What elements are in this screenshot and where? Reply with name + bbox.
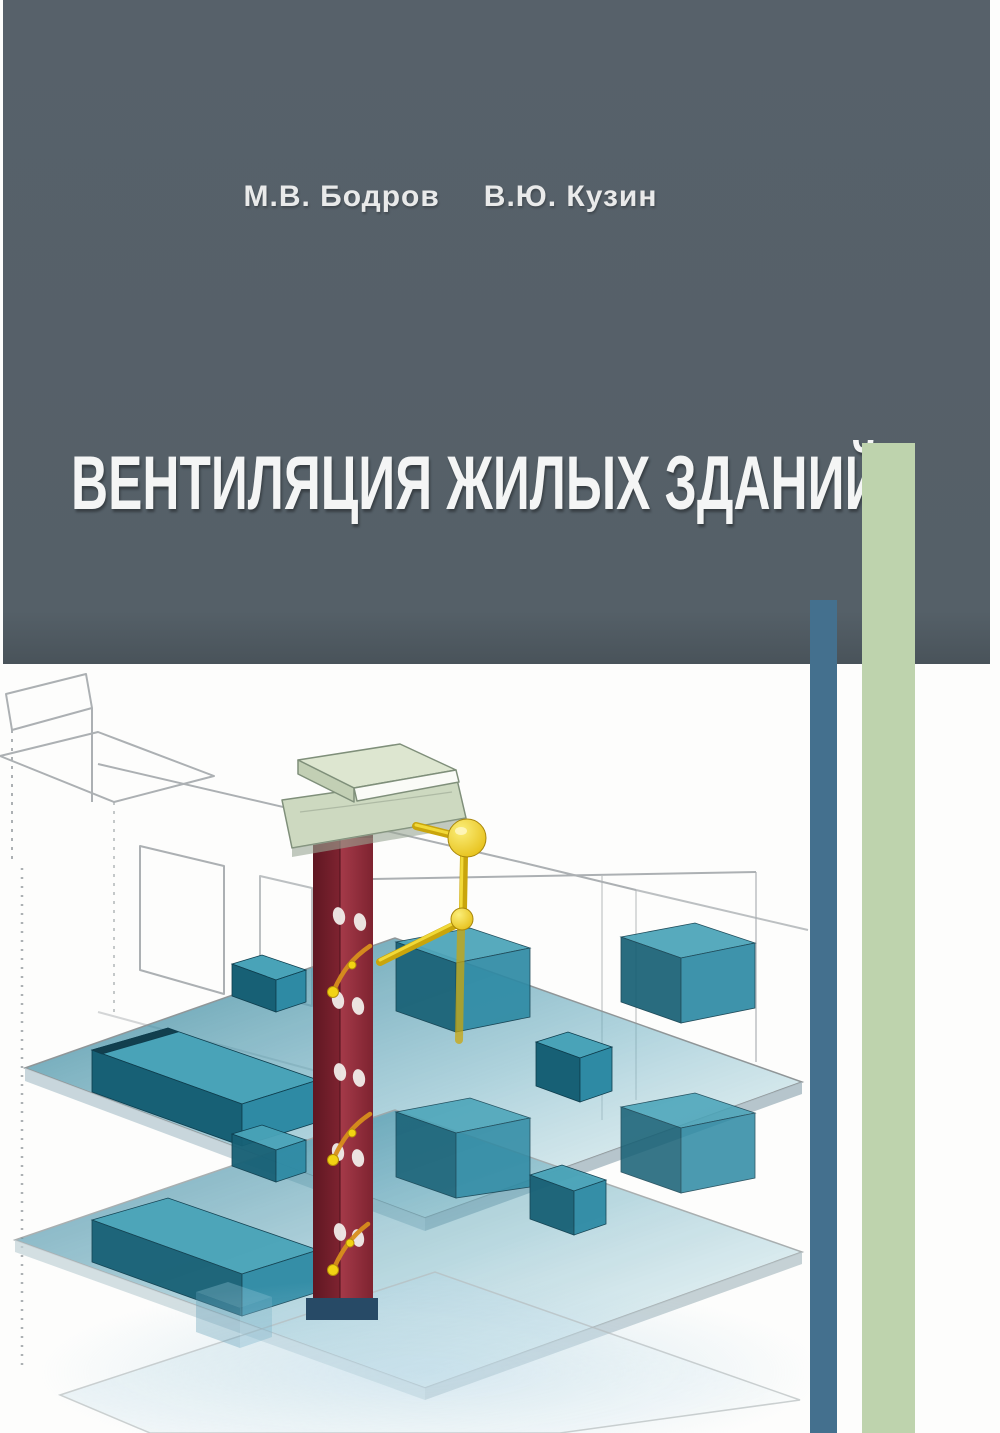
blue-accent-stripe [810,600,837,1433]
book-cover: М.В. Бодров В.Ю. Кузин ВЕНТИЛЯЦИЯ ЖИЛЫХ … [0,0,1000,1433]
exhaust-shaft [306,830,378,1320]
pipe-joint-large [448,819,486,857]
author-2: В.Ю. Кузин [484,180,658,214]
shaft-base [306,1298,378,1320]
tall-box-right-2 [621,1093,755,1193]
ventilation-illustration [0,664,1000,1433]
green-accent-stripe [862,443,915,1433]
roof-cowl [282,744,466,857]
authors-row: М.В. Бодров В.Ю. Кузин [0,180,944,214]
book-title: ВЕНТИЛЯЦИЯ ЖИЛЫХ ЗДАНИЙ [71,446,882,522]
cover-header-panel: М.В. Бодров В.Ю. Кузин ВЕНТИЛЯЦИЯ ЖИЛЫХ … [3,0,990,664]
tall-box-left-2 [396,1098,530,1198]
pipe-joint-small [451,908,473,930]
author-1: М.В. Бодров [244,180,440,214]
tall-box-right [621,923,755,1023]
